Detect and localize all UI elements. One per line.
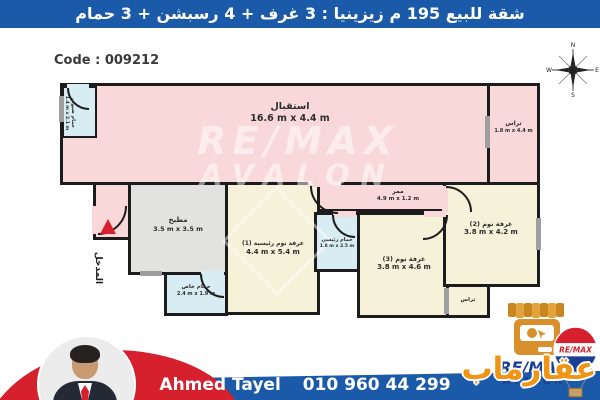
agent-name: Ahmed Tayel [159,375,280,395]
agent-photo [37,335,136,400]
listing-title-banner: شقة للبيع 195 م زيزينيا : 3 غرف + 4 رسبش… [0,0,600,28]
room-terrace-top [487,83,540,185]
room-master-bedroom [225,182,320,315]
flyer-canvas: شقة للبيع 195 م زيزينيا : 3 غرف + 4 رسبش… [0,0,600,400]
room-reception [60,83,490,185]
room-bedroom-3 [357,212,450,318]
compass-icon: N E S W [546,40,600,98]
room-corridor [314,182,446,212]
agent-hair [70,345,100,363]
svg-text:S: S [571,92,575,98]
partner-logo-text: عقارماب [458,352,600,386]
room-terrace-small [446,284,490,318]
room-master-bathroom [314,212,360,272]
svg-text:E: E [595,67,599,74]
svg-text:N: N [571,42,576,49]
room-guest-bathroom [62,86,97,138]
entrance-vestibule [93,182,131,240]
room-kitchen [128,182,228,275]
room-private-bathroom [164,272,228,316]
agent-phone: 010 960 44 299 [303,375,451,395]
room-bedroom-2 [443,182,540,287]
svg-text:W: W [546,67,552,74]
agent-contact: Ahmed Tayel 010 960 44 299 [150,375,460,395]
label-entrance: المدخل [91,243,103,293]
listing-code: Code : 009212 [54,53,159,68]
